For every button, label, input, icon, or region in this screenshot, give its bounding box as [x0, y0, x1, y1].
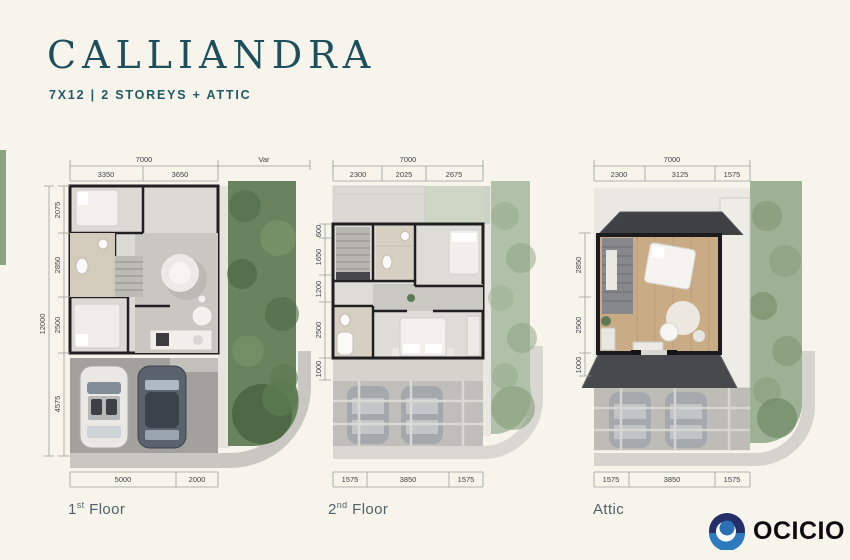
dim-top-total: 7000 — [136, 155, 153, 164]
dim-top-3: 2675 — [446, 170, 463, 179]
dim-top-total: 7000 — [664, 155, 681, 164]
carport-ghost — [333, 358, 483, 446]
floor-label-2nd: 2nd Floor — [328, 500, 388, 518]
dim-left-2: 2500 — [575, 317, 583, 334]
dim-bottom-3: 1575 — [458, 475, 475, 484]
carport-ghost — [594, 388, 750, 450]
dim-var: Var — [258, 155, 270, 164]
dim-left-2: 1650 — [315, 249, 323, 266]
floor-plan-1st-floor-graphic: 7000 Var 3350 3650 12000 2075 2850 2500 … — [40, 146, 312, 494]
dim-top-2: 2025 — [396, 170, 413, 179]
floor-label-number: 2 — [328, 501, 337, 518]
car-dark — [138, 366, 186, 448]
dim-left-4: 4575 — [53, 396, 62, 413]
garden-greenery — [218, 181, 299, 448]
dim-left-1: 600 — [315, 225, 323, 238]
roof-below — [333, 186, 425, 224]
roof-top — [598, 212, 743, 235]
dim-top-3: 1575 — [724, 170, 741, 179]
dim-left-1: 2075 — [53, 202, 62, 219]
dim-bottom-1: 5000 — [115, 475, 132, 484]
dim-top-1: 3350 — [98, 170, 115, 179]
dim-left-3: 2500 — [53, 317, 62, 334]
floor-plan-attic-graphic: 7000 2300 3125 1575 2850 2500 1000 1575 … — [575, 146, 825, 494]
ocicio-logo: OCICIO — [708, 512, 845, 550]
floor-plan-2nd-floor-graphic: 7000 2300 2025 2675 600 1650 1200 2500 1… — [315, 146, 555, 494]
dim-bottom-1: 1575 — [342, 475, 359, 484]
ocicio-logo-text: OCICIO — [753, 517, 845, 546]
dim-bottom-2: 3850 — [400, 475, 417, 484]
floorplan-brochure-page: CALLIANDRA 7X12 | 2 STOREYS + ATTIC — [0, 0, 850, 560]
attic-room — [598, 235, 720, 359]
dim-bottom-2: 3850 — [664, 475, 681, 484]
dim-left-5: 1000 — [315, 361, 323, 378]
floor-plan-attic: 7000 2300 3125 1575 2850 2500 1000 1575 … — [575, 146, 825, 494]
floor-label-ordinal: st — [77, 500, 85, 510]
floor-label-text: Floor — [85, 501, 126, 518]
dim-left-2: 2850 — [53, 257, 62, 274]
roof-lower — [582, 355, 737, 388]
page-title: CALLIANDRA — [47, 33, 376, 77]
dim-bottom-2: 2000 — [189, 475, 206, 484]
dim-left-1: 2850 — [575, 257, 583, 274]
garden-greenery — [749, 181, 802, 443]
dim-top-total: 7000 — [400, 155, 417, 164]
dim-bottom-3: 1575 — [724, 475, 741, 484]
dim-top-1: 2300 — [611, 170, 628, 179]
dim-left-total: 12000 — [40, 314, 47, 335]
page-subtitle: 7X12 | 2 STOREYS + ATTIC — [49, 88, 251, 102]
ocicio-logo-icon — [708, 512, 746, 550]
dim-bottom-1: 1575 — [603, 475, 620, 484]
dim-top-1: 2300 — [350, 170, 367, 179]
floor-label-1st: 1st Floor — [68, 500, 125, 518]
dim-left-4: 2500 — [315, 322, 323, 339]
dim-top-2: 3125 — [672, 170, 689, 179]
dim-left-3: 1000 — [575, 357, 583, 374]
car-white — [80, 366, 128, 448]
floor-plan-1st-floor: 7000 Var 3350 3650 12000 2075 2850 2500 … — [40, 146, 312, 494]
floor-label-number: 1 — [68, 501, 77, 518]
house-2nd-floor — [333, 224, 483, 358]
floor-plan-2nd-floor: 7000 2300 2025 2675 600 1650 1200 2500 1… — [315, 146, 555, 494]
left-edge-greenery — [0, 150, 6, 265]
house-1st-floor — [70, 186, 218, 353]
dim-left-3: 1200 — [315, 281, 323, 298]
floor-label-ordinal: nd — [337, 500, 348, 510]
floor-label-attic: Attic — [593, 500, 624, 518]
floor-label-text: Floor — [348, 501, 389, 518]
dim-top-2: 3650 — [172, 170, 189, 179]
floor-label-text: Attic — [593, 501, 624, 518]
